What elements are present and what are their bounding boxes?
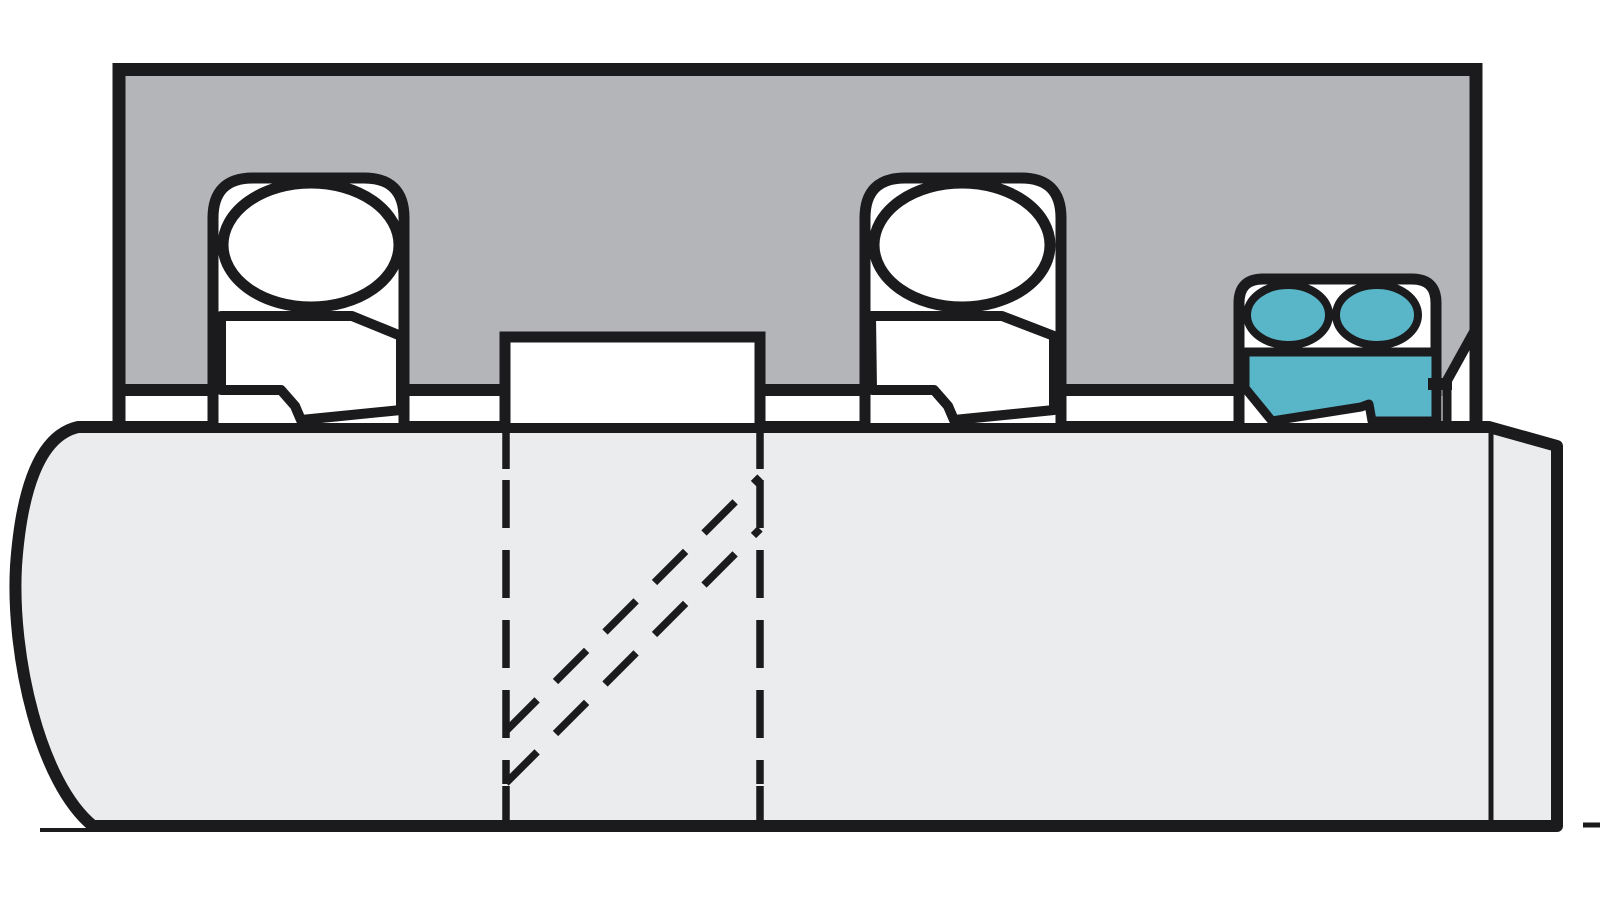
- scraper-seal-body-highlighted: [1245, 352, 1436, 421]
- scraper-o-ring-left: [1247, 285, 1329, 345]
- bore-face-segment-3: [758, 384, 865, 396]
- o-ring-left: [223, 183, 399, 307]
- diagram-canvas: Cross-section of a cylinder gland with t…: [0, 0, 1600, 900]
- rod-shaft: [15, 427, 1557, 826]
- seal-cross-section-diagram: Cross-section of a cylinder gland with t…: [0, 0, 1600, 900]
- bore-face-segment-4: [1062, 384, 1240, 396]
- bore-face-segment-1: [124, 384, 214, 396]
- scraper-o-ring-right: [1336, 285, 1418, 345]
- o-ring-center: [874, 183, 1050, 307]
- spacer-collar: [505, 337, 760, 423]
- bore-face-segment-2: [406, 384, 506, 396]
